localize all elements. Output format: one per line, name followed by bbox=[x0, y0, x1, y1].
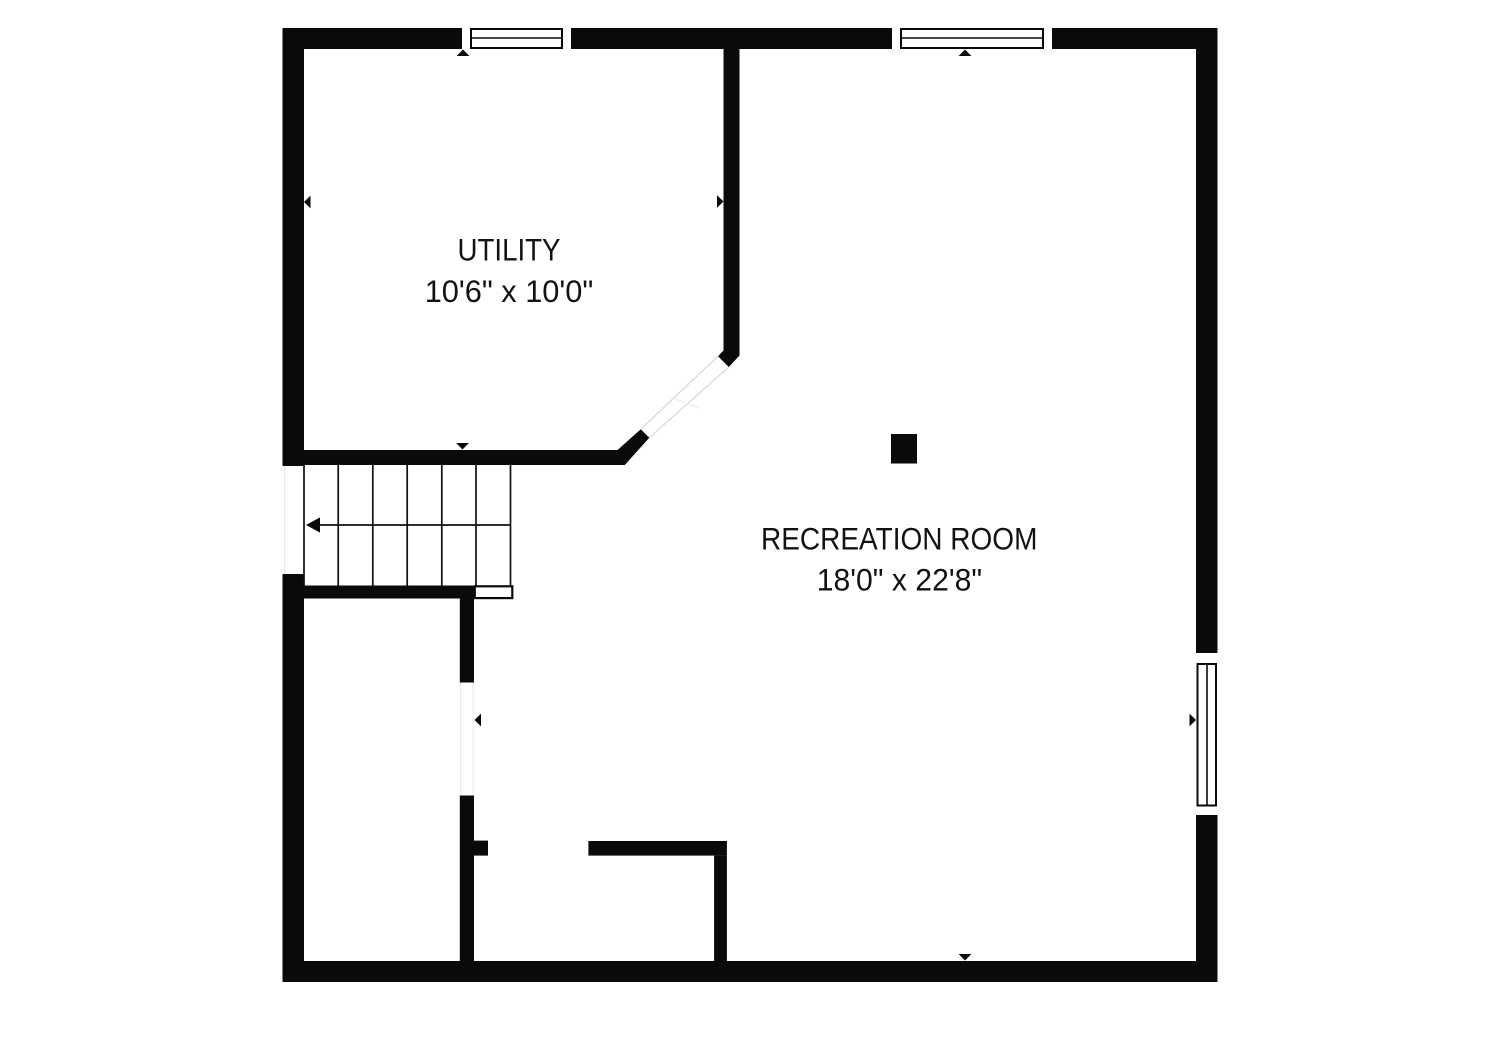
svg-text:RECREATION ROOM: RECREATION ROOM bbox=[761, 520, 1037, 556]
svg-text:UTILITY: UTILITY bbox=[458, 232, 561, 268]
svg-text:18'0" x 22'8": 18'0" x 22'8" bbox=[817, 562, 982, 598]
svg-text:10'6" x 10'0": 10'6" x 10'0" bbox=[425, 273, 594, 309]
